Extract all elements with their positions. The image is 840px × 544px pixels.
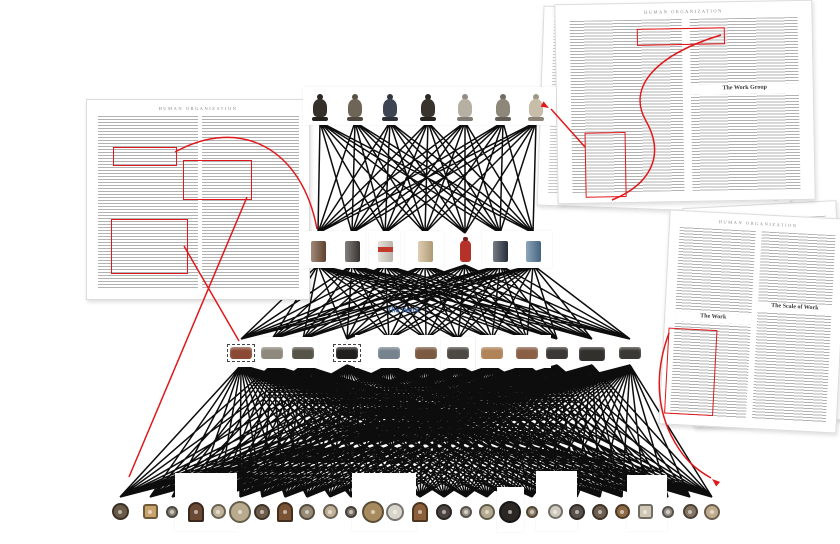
stone-node[interactable]	[336, 347, 358, 359]
stone-node[interactable]	[378, 347, 400, 359]
stone-node[interactable]	[261, 347, 283, 359]
stone-node[interactable]	[546, 347, 568, 359]
clock-node[interactable]	[638, 504, 653, 519]
figurine-node[interactable]	[528, 94, 544, 121]
clock-node[interactable]	[112, 503, 129, 520]
document-page-right[interactable]: HUMAN ORGANIZATION The Work The Scale of…	[658, 209, 840, 433]
figurine-node[interactable]	[495, 94, 511, 121]
container-node[interactable]	[378, 241, 393, 262]
container-node[interactable]	[493, 241, 508, 262]
clock-node[interactable]	[683, 504, 698, 519]
annotation-highlight-box	[113, 147, 177, 166]
document-page-top-right[interactable]: HUMAN ORGANIZATION The Work Group	[554, 0, 815, 204]
container-node[interactable]	[526, 241, 541, 262]
figurine-node[interactable]	[457, 94, 473, 121]
stone-node[interactable]	[481, 347, 503, 359]
stone-node[interactable]	[447, 347, 469, 359]
stone-node[interactable]	[516, 347, 538, 359]
clock-node[interactable]	[615, 504, 630, 519]
clock-node[interactable]	[386, 503, 404, 521]
clock-node[interactable]	[229, 501, 251, 523]
visualization-canvas: HUMAN ORGANIZATION HUMAN ORGANIZATION Th…	[0, 0, 840, 544]
stone-node[interactable]	[415, 347, 437, 359]
clock-node[interactable]	[254, 504, 270, 520]
running-head: HUMAN ORGANIZATION	[555, 7, 811, 16]
clock-node[interactable]	[569, 504, 585, 520]
container-node[interactable]	[311, 241, 326, 262]
running-head: HUMAN ORGANIZATION	[87, 106, 309, 111]
clock-node[interactable]	[277, 502, 293, 522]
stone-node[interactable]	[579, 347, 605, 361]
clock-node[interactable]	[143, 504, 158, 519]
document-page-left[interactable]: HUMAN ORGANIZATION	[86, 99, 310, 300]
clock-node[interactable]	[436, 504, 452, 520]
clock-node[interactable]	[188, 502, 204, 522]
item-card	[536, 471, 577, 531]
clock-node[interactable]	[592, 504, 608, 520]
figurine-node[interactable]	[420, 94, 436, 121]
figurine-node[interactable]	[312, 94, 328, 121]
figurine-node[interactable]	[382, 94, 398, 121]
annotation-highlight-box	[183, 160, 252, 200]
clock-node[interactable]	[323, 504, 338, 519]
container-node[interactable]	[418, 241, 433, 262]
clock-node[interactable]	[166, 506, 178, 518]
item-card	[175, 473, 237, 531]
clock-node[interactable]	[299, 504, 315, 520]
stone-node[interactable]	[230, 347, 252, 359]
container-node[interactable]	[460, 237, 471, 262]
clock-node[interactable]	[662, 506, 674, 518]
clock-node[interactable]	[548, 504, 563, 519]
clock-node[interactable]	[412, 502, 428, 522]
annotation-highlight-box	[111, 219, 188, 274]
cluster-label: The Work	[387, 308, 419, 315]
page-text-column	[752, 231, 836, 423]
annotation-highlight-box	[664, 328, 717, 416]
annotation-highlight-box	[585, 132, 627, 198]
clock-node[interactable]	[211, 504, 226, 519]
container-node[interactable]	[345, 241, 360, 262]
clock-node[interactable]	[499, 501, 521, 523]
clock-node[interactable]	[479, 504, 495, 520]
figurine-node[interactable]	[347, 94, 363, 121]
clock-node[interactable]	[460, 506, 472, 518]
stone-node[interactable]	[292, 347, 314, 359]
clock-node[interactable]	[704, 504, 720, 520]
annotation-highlight-box	[637, 27, 725, 46]
clock-node[interactable]	[526, 506, 538, 518]
stone-node[interactable]	[619, 347, 641, 359]
section-heading-work-group: The Work Group	[691, 83, 799, 95]
page-text-column	[202, 116, 299, 290]
clock-node[interactable]	[362, 501, 384, 523]
clock-node[interactable]	[345, 506, 357, 518]
item-card	[627, 475, 667, 531]
